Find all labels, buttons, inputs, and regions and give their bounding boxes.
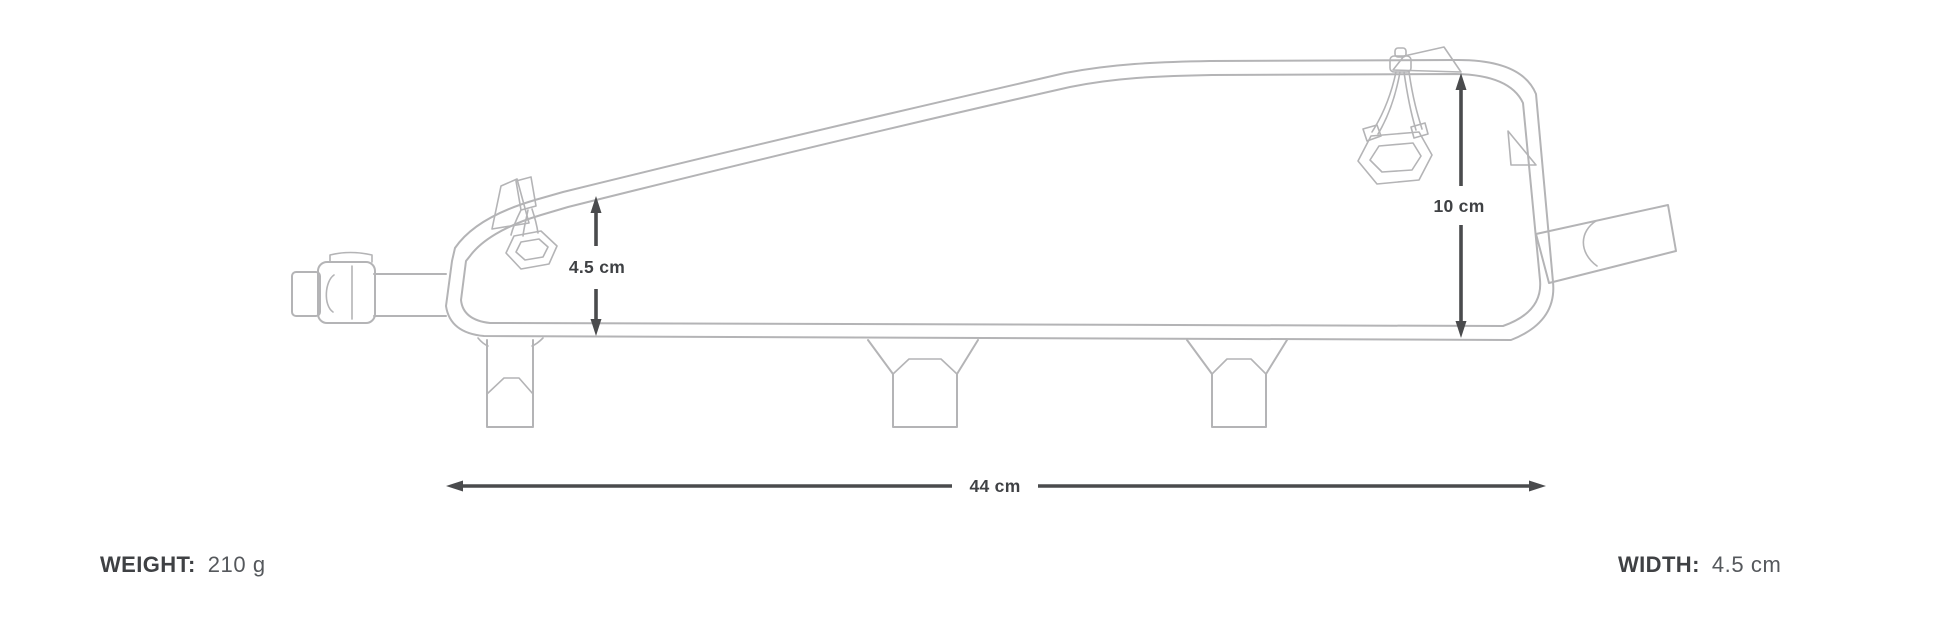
width-spec: WIDTH: 4.5 cm — [1618, 552, 1781, 578]
mounting-loops — [478, 338, 1287, 427]
dimension-length: 44 cm — [446, 476, 1546, 496]
zipper-toggle-left-outer — [506, 231, 557, 269]
mounting-loop-middle — [868, 340, 978, 427]
zipper-toggle-left-inner — [516, 239, 548, 260]
zipper-cord-right-b — [1378, 72, 1400, 134]
dimension-label-height-small: 4.5 cm — [569, 257, 625, 277]
buckle-lip — [330, 253, 372, 263]
bag-line-drawing: 4.5 cm 10 cm 44 cm — [0, 0, 1946, 626]
front-strap-buckle — [292, 253, 446, 324]
zipper-cord-right-d — [1409, 72, 1422, 129]
strap-tail — [292, 272, 320, 316]
cord-sleeve-right-b — [1411, 123, 1428, 138]
arrow-down-icon — [1456, 321, 1467, 338]
zipper-cord-left-c — [532, 209, 538, 233]
arrow-up-icon — [1456, 73, 1467, 90]
weight-value: 210 g — [208, 552, 266, 578]
zipper-pull-left — [492, 177, 557, 269]
width-label: WIDTH: — [1618, 552, 1700, 578]
arrow-left-icon — [446, 481, 463, 492]
dimension-label-height-large: 10 cm — [1433, 196, 1484, 216]
mounting-loop-left — [478, 338, 543, 427]
zipper-toggle-right-outer — [1358, 132, 1432, 184]
dimension-height-small: 4.5 cm — [569, 196, 625, 336]
loop-right-body — [1187, 340, 1287, 427]
dimension-height-large: 10 cm — [1433, 73, 1484, 338]
width-value: 4.5 cm — [1712, 552, 1782, 578]
zipper-toggle-right-inner — [1370, 143, 1421, 172]
diagram-canvas: 4.5 cm 10 cm 44 cm WEIGHT: 210 g WIDTH: … — [0, 0, 1946, 626]
dimension-label-length: 44 cm — [969, 476, 1020, 496]
loop-left-body — [487, 340, 533, 427]
weight-spec: WEIGHT: 210 g — [100, 552, 266, 578]
loop-middle-fold — [893, 359, 957, 374]
rear-edge-flap — [1508, 131, 1536, 165]
bag-inner-contour — [461, 74, 1540, 326]
zipper-pull-right — [1358, 47, 1461, 184]
rear-strap-velcro-edge — [1583, 221, 1597, 266]
loop-left-fold — [487, 378, 533, 394]
arrow-down-icon — [591, 319, 602, 336]
mounting-loop-right — [1187, 340, 1287, 427]
arrow-right-icon — [1529, 481, 1546, 492]
loop-middle-body — [868, 340, 978, 427]
loop-right-fold — [1212, 359, 1266, 374]
buckle-slot — [326, 275, 334, 312]
weight-label: WEIGHT: — [100, 552, 196, 578]
rear-strap-body — [1536, 205, 1676, 283]
